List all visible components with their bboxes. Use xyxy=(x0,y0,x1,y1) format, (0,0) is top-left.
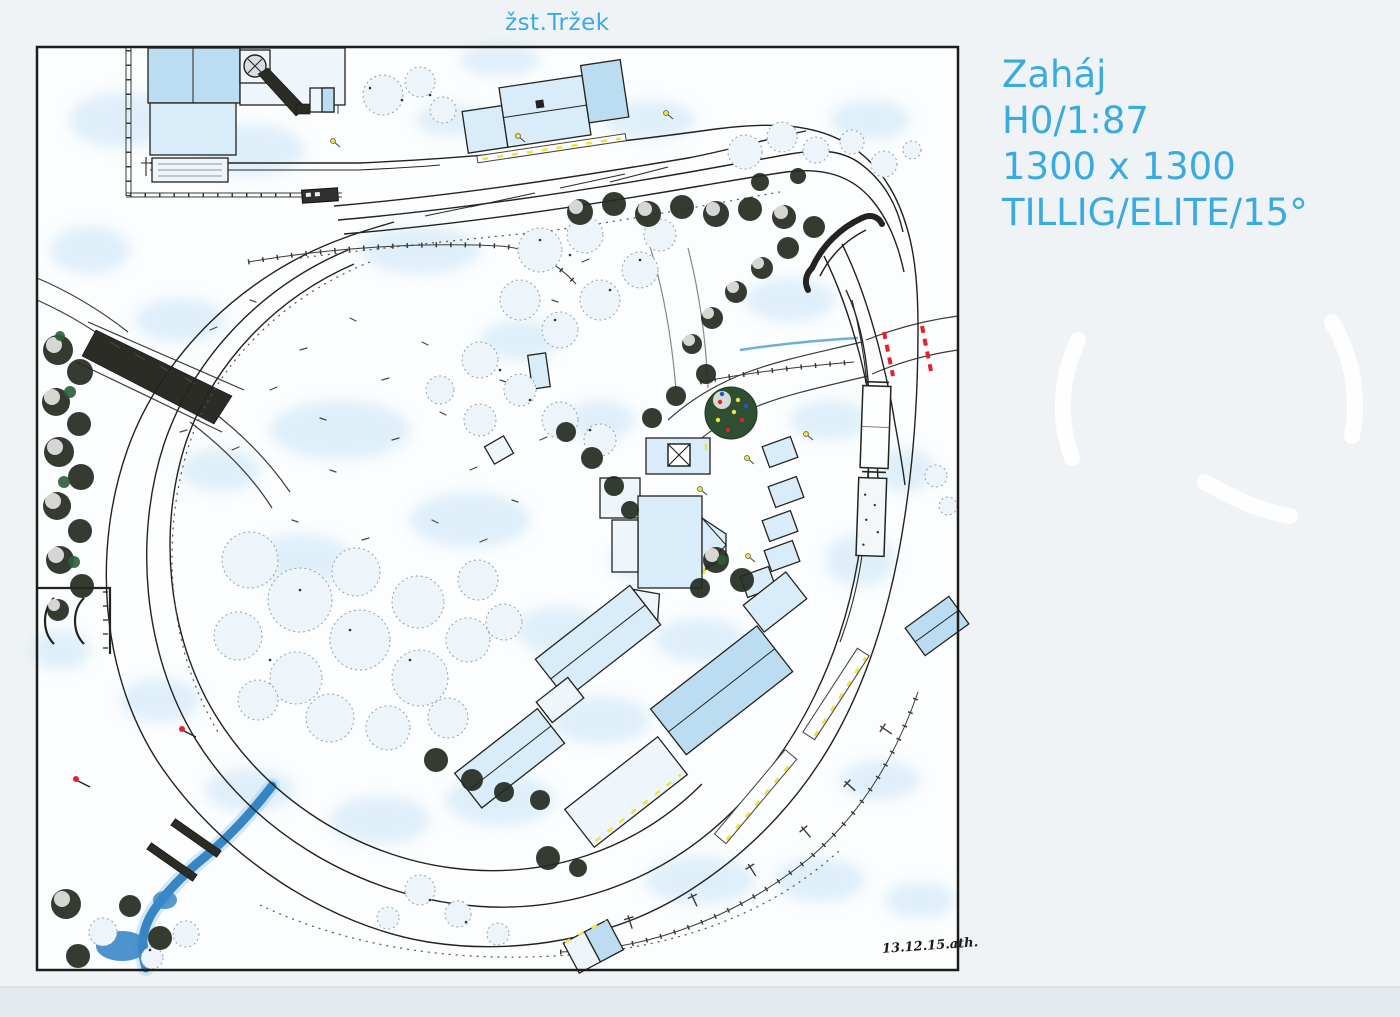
farm-house xyxy=(638,496,702,588)
track-plan-drawing xyxy=(0,0,1400,1017)
chimney xyxy=(535,99,544,108)
shunting-locomotive xyxy=(302,188,339,203)
christmas-tree xyxy=(705,387,757,439)
scan-bottom-band xyxy=(0,988,1400,1017)
